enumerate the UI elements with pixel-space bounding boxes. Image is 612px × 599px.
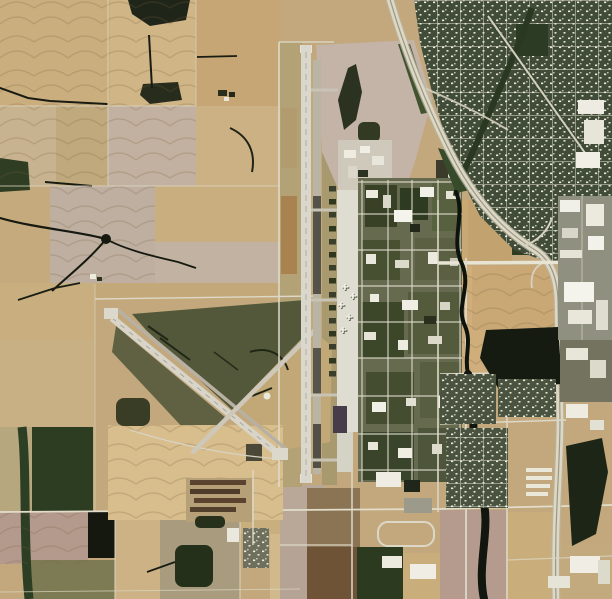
revetment — [329, 265, 336, 271]
field-contour — [0, 512, 88, 564]
dirt-strip — [281, 196, 297, 274]
field-brown — [307, 547, 357, 599]
revetment — [329, 344, 336, 350]
apartment-row — [526, 476, 552, 480]
subdivision-houses — [440, 374, 496, 424]
barracks-row — [190, 489, 240, 494]
building — [410, 564, 436, 579]
field — [0, 283, 95, 340]
commercial-building — [566, 404, 588, 418]
building — [360, 146, 370, 153]
revetment — [329, 239, 336, 245]
trailer-park-houses — [243, 528, 269, 568]
revetment — [329, 305, 336, 311]
field-dark-green — [32, 427, 93, 512]
subdivision-houses — [498, 379, 556, 417]
field-mauve — [440, 510, 506, 599]
commercial-building — [548, 576, 570, 588]
dirt-strip — [281, 108, 297, 168]
base-block — [362, 302, 404, 358]
building-hangar — [394, 210, 412, 222]
farmstead — [97, 277, 102, 281]
revetment — [329, 358, 336, 364]
south-apron — [337, 432, 353, 472]
field-mauve — [155, 242, 280, 283]
building — [432, 444, 442, 454]
building — [348, 166, 357, 178]
field-dark-green — [357, 547, 403, 599]
commercial-building — [590, 420, 604, 430]
building — [344, 150, 356, 158]
apartment-row — [526, 492, 548, 496]
revetment — [329, 371, 336, 377]
woods — [195, 516, 225, 528]
commercial-building — [560, 250, 582, 258]
building — [376, 472, 401, 487]
field — [115, 512, 160, 599]
parking-lot — [404, 498, 432, 513]
commercial-building — [578, 100, 604, 114]
field-contour — [50, 186, 155, 283]
runway-threshold — [104, 308, 118, 319]
field — [0, 340, 95, 427]
building — [368, 442, 378, 450]
satellite-photo — [0, 0, 612, 599]
building — [366, 254, 376, 264]
satellite-photo-frame — [0, 0, 612, 599]
apartment-row — [526, 468, 552, 472]
revetment — [329, 212, 336, 218]
revetment — [329, 199, 336, 205]
building-dark — [410, 224, 420, 232]
building — [370, 294, 379, 302]
commercial-building — [560, 200, 580, 212]
commercial-building — [564, 282, 594, 302]
building — [428, 252, 438, 264]
barracks-row — [190, 480, 246, 485]
commercial-building — [562, 228, 578, 238]
building — [398, 340, 408, 350]
commercial-building — [576, 152, 600, 168]
apartment-row — [526, 484, 550, 488]
revetment — [329, 186, 336, 192]
field-mauve — [280, 547, 307, 599]
scene-root — [0, 0, 612, 599]
creek — [197, 56, 237, 57]
revetment — [329, 252, 336, 258]
field-contour — [0, 106, 196, 186]
woods — [358, 122, 380, 142]
runway-threshold — [272, 448, 288, 460]
commercial-building — [596, 300, 608, 330]
building — [402, 300, 418, 310]
revetment — [329, 226, 336, 232]
commercial-building — [598, 560, 610, 584]
building — [372, 402, 386, 412]
woods — [175, 545, 213, 587]
subdivision-houses — [446, 428, 508, 508]
farmstead — [218, 90, 227, 96]
field-contour — [0, 0, 196, 106]
field — [0, 186, 50, 283]
asphalt-section — [313, 348, 321, 396]
barracks-row — [190, 507, 236, 512]
building — [382, 556, 402, 568]
building — [420, 187, 434, 197]
building — [395, 260, 409, 268]
building — [428, 336, 442, 344]
field — [196, 0, 280, 106]
building-dark — [424, 316, 436, 324]
farmstead — [224, 97, 229, 101]
building — [227, 528, 239, 542]
field — [155, 186, 280, 242]
building — [398, 448, 412, 458]
woods — [116, 398, 150, 426]
hangar-dark — [333, 406, 347, 433]
farmstead — [229, 92, 235, 97]
commercial-building — [568, 310, 592, 324]
commercial-building — [566, 348, 588, 360]
commercial-building — [588, 236, 604, 250]
pad-circle — [264, 393, 271, 400]
building — [406, 398, 416, 406]
field-olive — [25, 560, 115, 599]
revetment — [329, 318, 336, 324]
farmstead — [90, 274, 96, 279]
building-dark — [358, 170, 368, 177]
barracks-row — [194, 498, 246, 503]
building — [383, 195, 391, 208]
revetment — [329, 292, 336, 298]
revetment — [329, 278, 336, 284]
commercial-building — [586, 204, 604, 226]
revetment — [329, 331, 336, 337]
building — [372, 156, 384, 165]
building — [364, 332, 376, 340]
asphalt-pad — [246, 444, 262, 461]
building — [440, 302, 450, 310]
building-dark — [404, 480, 420, 492]
field — [196, 106, 280, 186]
building — [366, 190, 378, 198]
commercial-building — [590, 360, 606, 378]
commercial-building — [584, 120, 604, 144]
commercial-building — [570, 556, 600, 573]
